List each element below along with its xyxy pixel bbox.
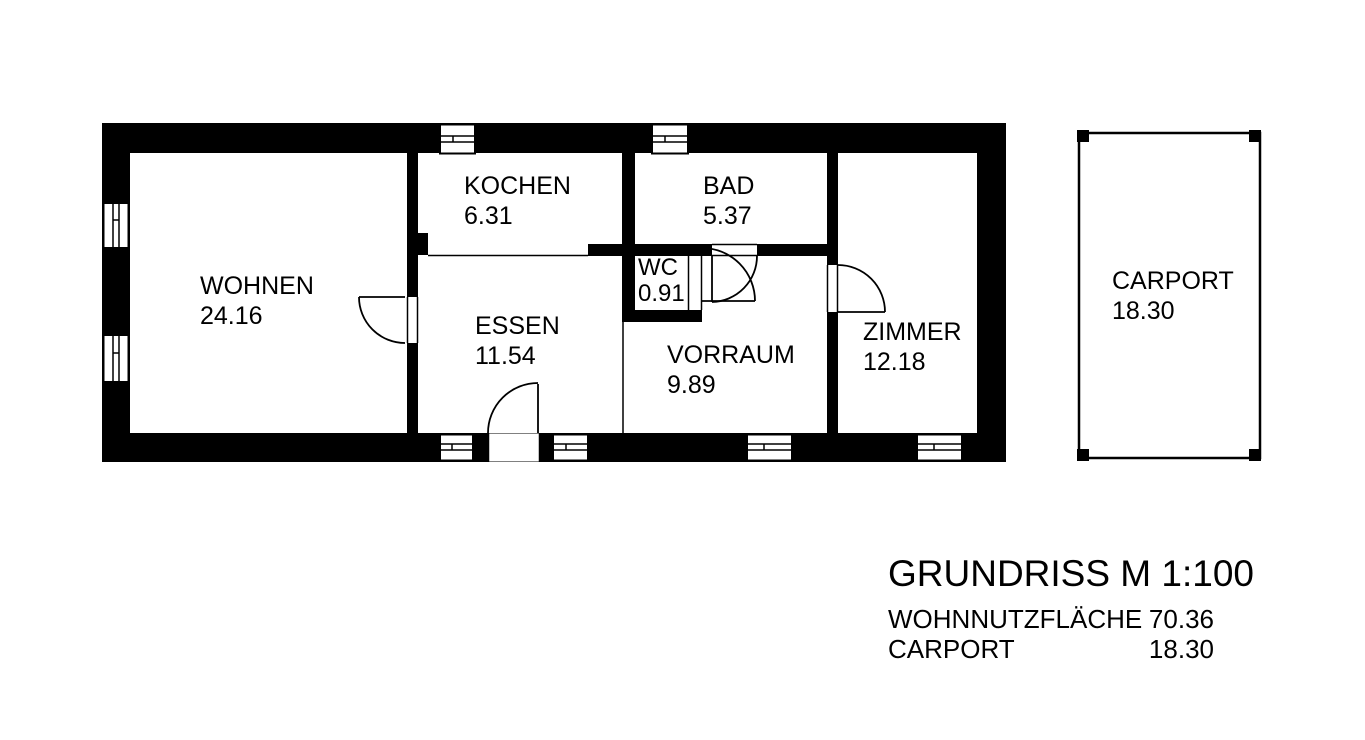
window-icon — [440, 125, 475, 154]
summary-label: WOHNNUTZFLÄCHE — [888, 604, 1142, 634]
title-block: GRUNDRISS M 1:100 WOHNNUTZFLÄCHE 70.36 C… — [888, 552, 1260, 664]
window-icon — [440, 435, 473, 461]
room-name: WC — [638, 255, 685, 281]
room-name: CARPORT — [1112, 266, 1234, 296]
room-label-wohnen: WOHNEN 24.16 — [200, 271, 314, 331]
room-label-zimmer: ZIMMER 12.18 — [863, 317, 962, 377]
summary-row-wohnnutzflaeche: WOHNNUTZFLÄCHE 70.36 — [888, 604, 1214, 634]
room-name: KOCHEN — [464, 171, 571, 201]
room-area: 9.89 — [667, 370, 795, 400]
room-area: 11.54 — [475, 341, 560, 371]
room-label-kochen: KOCHEN 6.31 — [464, 171, 571, 231]
room-name: VORRAUM — [667, 340, 795, 370]
window-icon — [652, 125, 688, 154]
room-label-vorraum: VORRAUM 9.89 — [667, 340, 795, 400]
room-area: 5.37 — [703, 201, 754, 231]
room-name: BAD — [703, 171, 754, 201]
room-name: ZIMMER — [863, 317, 962, 347]
room-area: 6.31 — [464, 201, 571, 231]
floorplan-canvas: WOHNEN 24.16 KOCHEN 6.31 BAD 5.37 WC 0.9… — [0, 0, 1365, 740]
window-icon — [553, 435, 588, 461]
window-icon — [104, 203, 129, 248]
room-area: 18.30 — [1112, 296, 1234, 326]
room-label-bad: BAD 5.37 — [703, 171, 754, 231]
room-name: WOHNEN — [200, 271, 314, 301]
room-area: 24.16 — [200, 301, 314, 331]
window-icon — [747, 435, 792, 461]
summary-value: 70.36 — [1149, 604, 1214, 634]
room-area: 12.18 — [863, 347, 962, 377]
window-icon — [917, 435, 962, 461]
room-area: 0.91 — [638, 281, 685, 307]
summary-value: 18.30 — [1149, 634, 1214, 664]
window-icon — [104, 335, 129, 382]
room-label-essen: ESSEN 11.54 — [475, 311, 560, 371]
plan-title: GRUNDRISS M 1:100 — [888, 552, 1260, 596]
summary-row-carport: CARPORT 18.30 — [888, 634, 1214, 664]
room-name: ESSEN — [475, 311, 560, 341]
area-summary: WOHNNUTZFLÄCHE 70.36 CARPORT 18.30 — [888, 604, 1214, 664]
room-label-carport: CARPORT 18.30 — [1112, 266, 1234, 326]
room-label-wc: WC 0.91 — [638, 255, 685, 307]
summary-label: CARPORT — [888, 634, 1015, 664]
